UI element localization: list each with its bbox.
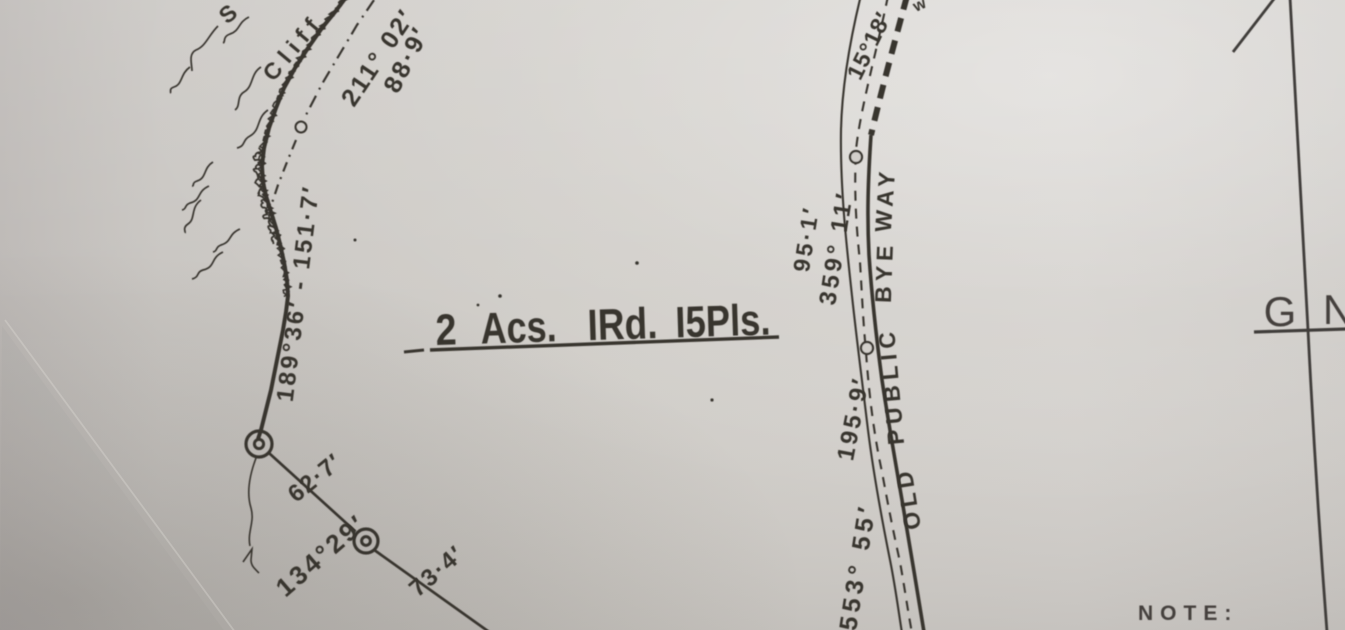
svg-text:Acs.: Acs. — [480, 302, 558, 353]
svg-text:IRd.: IRd. — [587, 299, 659, 350]
svg-text:N: N — [1323, 286, 1345, 333]
svg-text:2: 2 — [435, 305, 458, 355]
svg-text:G: G — [1264, 288, 1297, 335]
svg-text:WAY: WAY — [870, 166, 900, 233]
svg-text:BYE: BYE — [870, 240, 898, 303]
svg-text:NOTE:: NOTE: — [1138, 602, 1238, 625]
svg-text:I5Pls.: I5Pls. — [675, 296, 771, 348]
